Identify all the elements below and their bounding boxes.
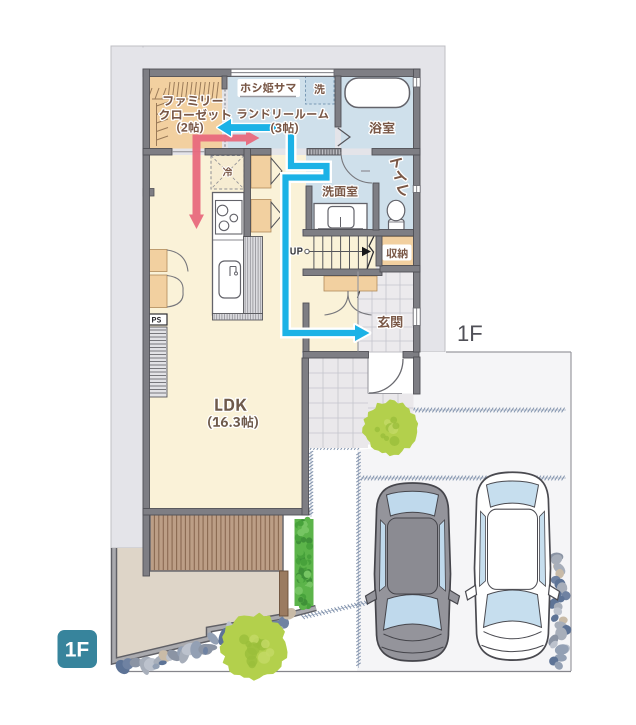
svg-text:1F: 1F [457,321,483,346]
svg-text:1F: 1F [65,639,90,662]
